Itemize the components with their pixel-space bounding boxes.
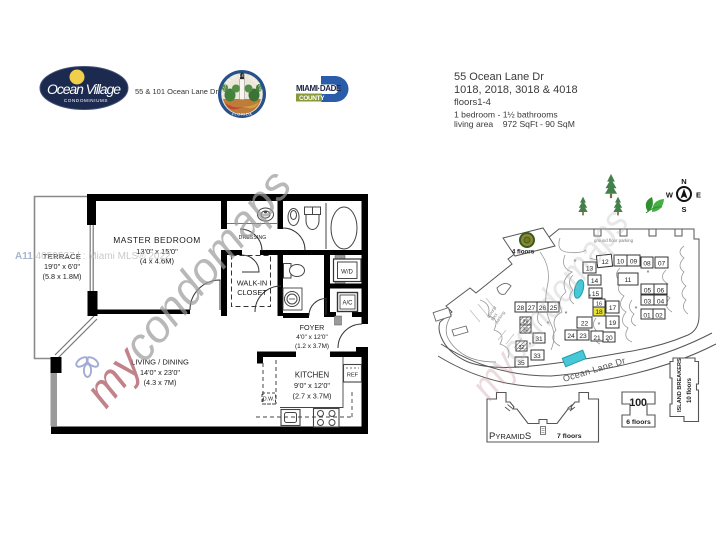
svg-text:FLORIDA: FLORIDA	[232, 112, 253, 117]
svg-text:*: *	[647, 270, 650, 277]
svg-text:9'0" x 12'0": 9'0" x 12'0"	[294, 381, 330, 390]
svg-text:REF: REF	[347, 373, 359, 379]
svg-text:10: 10	[617, 259, 625, 266]
svg-text:22: 22	[581, 321, 589, 328]
svg-text:Ocean Village: Ocean Village	[47, 81, 121, 97]
svg-text:24: 24	[567, 333, 575, 340]
svg-text:23: 23	[579, 333, 587, 340]
svg-text:E: E	[696, 191, 701, 200]
svg-text:55 & 101 Ocean Lane Dr: 55 & 101 Ocean Lane Dr	[135, 87, 218, 96]
svg-text:MIAMI·DADE: MIAMI·DADE	[296, 84, 342, 93]
svg-text:CONDOMINIUMS: CONDOMINIUMS	[64, 98, 108, 103]
svg-text:07: 07	[658, 261, 666, 268]
svg-text:living area 972 SqFt - 90 S: living area 972 SqFt - 90 SqM	[454, 119, 575, 129]
svg-text:06: 06	[657, 288, 665, 295]
svg-text:03: 03	[644, 299, 652, 306]
svg-text:16: 16	[596, 302, 602, 308]
svg-text:FOYER: FOYER	[300, 323, 325, 332]
svg-text:19'0" x 6'0": 19'0" x 6'0"	[44, 262, 80, 271]
svg-text:10 floors: 10 floors	[687, 377, 693, 403]
svg-text:*: *	[589, 294, 592, 301]
svg-text:W: W	[666, 191, 674, 200]
svg-text:*: *	[598, 322, 601, 329]
svg-text:KITCHEN: KITCHEN	[295, 371, 329, 380]
svg-text:(2.7 x 3.7M): (2.7 x 3.7M)	[293, 392, 332, 401]
svg-text:1 bedroom - 1½ bathrooms: 1 bedroom - 1½ bathrooms	[454, 110, 558, 120]
svg-text:09: 09	[630, 259, 638, 266]
svg-text:04: 04	[657, 299, 665, 306]
svg-text:(4.3 x 7M): (4.3 x 7M)	[144, 378, 177, 387]
svg-text:D.W.: D.W.	[263, 397, 274, 403]
svg-text:WALK-IN: WALK-IN	[237, 279, 268, 288]
svg-text:*: *	[607, 339, 610, 346]
svg-text:02: 02	[655, 313, 663, 320]
svg-text:MASTER BEDROOM: MASTER BEDROOM	[113, 235, 201, 245]
svg-text:W/D: W/D	[341, 270, 353, 276]
svg-text:6 floors: 6 floors	[626, 419, 651, 426]
svg-text:4 floors: 4 floors	[512, 249, 535, 256]
svg-text:17: 17	[609, 305, 617, 312]
svg-text:11: 11	[625, 277, 632, 284]
svg-text:1018, 2018, 3018 & 4018: 1018, 2018, 3018 & 4018	[454, 84, 578, 96]
svg-text:18: 18	[595, 309, 603, 316]
svg-text:55 Ocean Lane Dr: 55 Ocean Lane Dr	[454, 71, 544, 83]
svg-text:A/C: A/C	[342, 301, 353, 307]
svg-text:08: 08	[643, 261, 651, 268]
svg-text:floors1-4: floors1-4	[454, 97, 491, 108]
svg-text:(5.8 x 1.8M): (5.8 x 1.8M)	[43, 272, 82, 281]
svg-text:4'0" x 12'0": 4'0" x 12'0"	[296, 334, 328, 341]
svg-text:19: 19	[609, 320, 617, 327]
svg-text:100: 100	[629, 397, 647, 409]
svg-text:15: 15	[592, 291, 600, 298]
svg-text:01: 01	[643, 313, 651, 320]
svg-text:*: *	[635, 306, 638, 313]
svg-text:PYRAMIDS: PYRAMIDS	[489, 431, 531, 442]
svg-text:S: S	[681, 205, 686, 214]
svg-text:CLOSET: CLOSET	[237, 288, 267, 297]
svg-text:21: 21	[593, 335, 601, 342]
svg-text:N: N	[681, 177, 686, 186]
svg-text:COUNTY: COUNTY	[299, 95, 325, 102]
svg-text:ISLAND BREAKERS: ISLAND BREAKERS	[677, 358, 683, 412]
svg-text:05: 05	[644, 288, 652, 295]
svg-text:7 floors: 7 floors	[557, 433, 582, 440]
svg-text:(1.2 x 3.7M): (1.2 x 3.7M)	[295, 343, 329, 350]
svg-text:A11 4059527 | : Miami MLS® 202: A11 4059527 | : Miami MLS® 2022	[15, 251, 171, 262]
